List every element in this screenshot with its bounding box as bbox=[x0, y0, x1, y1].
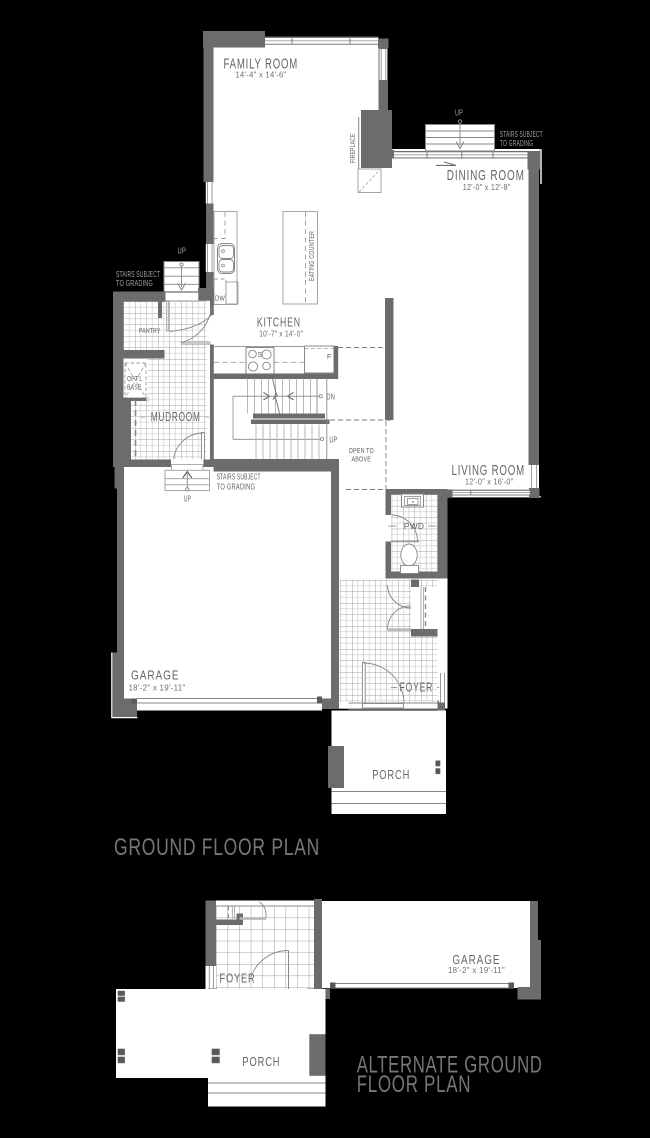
svg-text:MUDROOM: MUDROOM bbox=[151, 409, 201, 424]
svg-text:FLOOR PLAN: FLOOR PLAN bbox=[357, 1071, 472, 1098]
svg-text:GARAGE: GARAGE bbox=[131, 668, 180, 683]
svg-text:TO GRADING: TO GRADING bbox=[217, 483, 256, 492]
svg-text:14'-4" x 14'-6": 14'-4" x 14'-6" bbox=[236, 70, 287, 80]
svg-text:10'-7" x 14'-0": 10'-7" x 14'-0" bbox=[259, 329, 303, 339]
svg-text:FIREPLACE: FIREPLACE bbox=[350, 133, 357, 163]
svg-text:PORCH: PORCH bbox=[372, 767, 410, 782]
svg-text:18'-2" x 19'-11": 18'-2" x 19'-11" bbox=[448, 965, 505, 975]
svg-text:PANTRY: PANTRY bbox=[139, 328, 161, 335]
svg-text:ABOVE: ABOVE bbox=[352, 457, 372, 464]
svg-text:STAIRS SUBJECT: STAIRS SUBJECT bbox=[116, 270, 160, 279]
svg-text:STAIRS SUBJECT: STAIRS SUBJECT bbox=[500, 130, 543, 139]
svg-text:TO GRADING: TO GRADING bbox=[116, 279, 153, 288]
svg-text:BASE: BASE bbox=[127, 385, 142, 392]
svg-text:KITCHEN: KITCHEN bbox=[257, 315, 301, 330]
svg-text:TO GRADING: TO GRADING bbox=[500, 139, 534, 148]
svg-text:S: S bbox=[258, 352, 263, 359]
svg-text:PORCH: PORCH bbox=[242, 1054, 280, 1069]
svg-text:STAIRS SUBJECT: STAIRS SUBJECT bbox=[217, 473, 261, 482]
svg-text:12'-0" x 12'-8": 12'-0" x 12'-8" bbox=[463, 182, 511, 192]
svg-text:PWD: PWD bbox=[404, 522, 425, 531]
svg-text:DN: DN bbox=[327, 393, 336, 402]
svg-text:UP: UP bbox=[184, 495, 191, 504]
svg-text:F: F bbox=[327, 354, 331, 361]
svg-text:18'-2" x 19'-11": 18'-2" x 19'-11" bbox=[129, 683, 186, 693]
svg-text:UP: UP bbox=[455, 109, 463, 118]
svg-text:OPEN TO: OPEN TO bbox=[349, 448, 374, 455]
svg-text:EATING COUNTER: EATING COUNTER bbox=[309, 231, 316, 281]
svg-text:OPT'L: OPT'L bbox=[127, 376, 143, 383]
svg-text:GROUND FLOOR PLAN: GROUND FLOOR PLAN bbox=[114, 834, 320, 861]
svg-text:FOYER: FOYER bbox=[220, 971, 256, 986]
svg-text:UP: UP bbox=[329, 436, 337, 445]
svg-text:FOYER: FOYER bbox=[400, 680, 434, 695]
svg-text:12'-0" x 16'-0": 12'-0" x 16'-0" bbox=[465, 476, 514, 486]
svg-text:UP: UP bbox=[178, 247, 187, 256]
svg-text:DW: DW bbox=[215, 296, 225, 303]
